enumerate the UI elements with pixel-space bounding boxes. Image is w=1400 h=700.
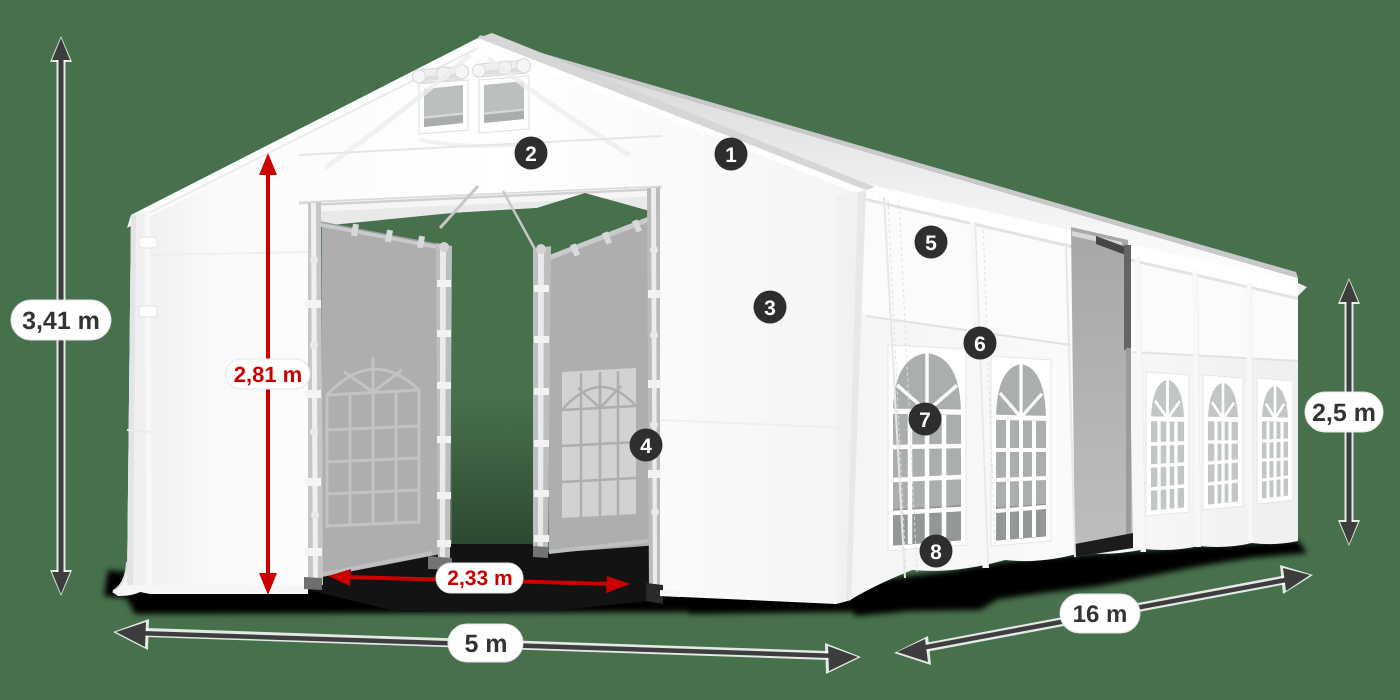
svg-text:3: 3 — [764, 297, 776, 320]
svg-text:1: 1 — [725, 144, 737, 167]
svg-text:5: 5 — [925, 232, 937, 255]
svg-text:6: 6 — [974, 333, 986, 356]
svg-text:2: 2 — [525, 143, 537, 166]
svg-text:2,33 m: 2,33 m — [447, 567, 512, 590]
svg-text:5 m: 5 m — [464, 630, 507, 658]
svg-text:2,5 m: 2,5 m — [1312, 399, 1376, 427]
svg-text:4: 4 — [640, 435, 652, 458]
svg-text:16 m: 16 m — [1073, 601, 1128, 628]
svg-text:8: 8 — [930, 541, 942, 564]
svg-text:7: 7 — [919, 409, 931, 432]
svg-text:3,41 m: 3,41 m — [22, 307, 100, 335]
svg-text:2,81 m: 2,81 m — [234, 362, 303, 387]
